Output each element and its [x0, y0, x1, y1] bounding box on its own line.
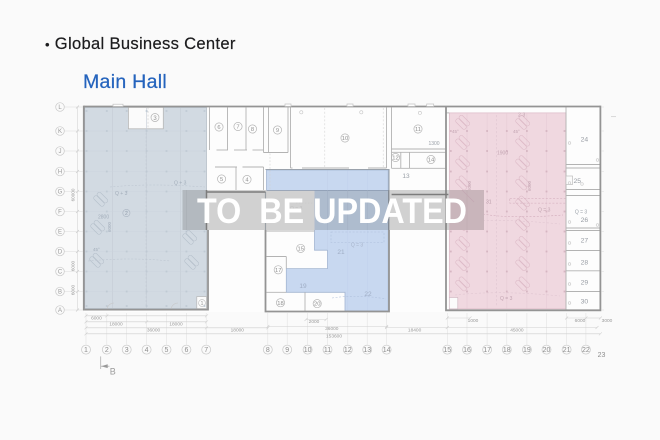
svg-text:6000: 6000: [527, 180, 532, 191]
svg-text:TO BE UPDATED: TO BE UPDATED: [197, 191, 467, 231]
svg-text:14: 14: [428, 158, 435, 164]
svg-text:60000: 60000: [71, 188, 76, 201]
svg-text:28: 28: [581, 260, 589, 267]
svg-text:10: 10: [304, 347, 312, 354]
svg-text:4: 4: [145, 347, 149, 354]
svg-text:16: 16: [463, 347, 471, 354]
svg-text:1900: 1900: [497, 151, 508, 157]
svg-text:10: 10: [342, 136, 348, 142]
svg-text:15: 15: [443, 347, 451, 354]
svg-text:Q = 3: Q = 3: [351, 243, 364, 249]
svg-text:45°: 45°: [513, 129, 520, 134]
svg-text:45°: 45°: [93, 247, 100, 252]
svg-text:23: 23: [598, 352, 606, 359]
svg-text:C: C: [58, 270, 63, 276]
svg-text:E: E: [58, 230, 62, 236]
svg-text:6000: 6000: [107, 221, 112, 232]
svg-text:22: 22: [364, 291, 372, 298]
svg-text:9: 9: [276, 128, 279, 134]
svg-text:18400: 18400: [408, 327, 422, 333]
svg-text:12: 12: [392, 156, 398, 162]
svg-text:12: 12: [344, 347, 352, 354]
svg-text:5: 5: [220, 177, 223, 183]
svg-text:18000: 18000: [169, 322, 183, 328]
svg-text:20: 20: [543, 347, 551, 354]
svg-text:1000: 1000: [468, 318, 479, 324]
svg-text:21: 21: [563, 347, 571, 354]
svg-text:21: 21: [337, 249, 345, 256]
svg-text:36000: 36000: [325, 326, 339, 332]
svg-text:14: 14: [383, 347, 391, 354]
svg-text:3000: 3000: [602, 318, 613, 324]
svg-text:Q = 3: Q = 3: [500, 296, 513, 302]
svg-text:6000: 6000: [91, 316, 102, 322]
svg-text:1: 1: [201, 301, 204, 307]
svg-text:153600: 153600: [326, 333, 342, 339]
svg-text:H: H: [58, 170, 62, 176]
svg-text:11: 11: [415, 127, 421, 133]
svg-text:20: 20: [314, 302, 320, 308]
svg-text:8: 8: [266, 347, 270, 354]
svg-text:36000: 36000: [147, 328, 161, 334]
svg-text:8: 8: [251, 127, 254, 133]
svg-text:6000: 6000: [71, 284, 76, 295]
svg-text:19: 19: [523, 347, 531, 354]
svg-text:F: F: [58, 210, 62, 216]
svg-text:5: 5: [165, 347, 169, 354]
svg-text:6: 6: [184, 347, 188, 354]
svg-text:9: 9: [285, 347, 289, 354]
svg-text:J: J: [59, 149, 62, 155]
svg-text:29: 29: [581, 280, 589, 287]
svg-text:B: B: [110, 367, 116, 377]
svg-text:18: 18: [503, 347, 511, 354]
svg-text:2: 2: [125, 211, 128, 217]
svg-text:Q = 3: Q = 3: [575, 210, 588, 216]
svg-text:6000: 6000: [71, 260, 76, 271]
svg-text:D: D: [58, 250, 63, 256]
svg-text:18: 18: [277, 301, 283, 307]
svg-text:6: 6: [217, 125, 220, 131]
svg-text:22: 22: [582, 347, 590, 354]
svg-text:A: A: [58, 308, 62, 314]
svg-text:2800: 2800: [98, 215, 109, 221]
svg-text:Q + 3: Q + 3: [115, 191, 128, 197]
svg-text:G: G: [58, 190, 63, 196]
svg-text:17: 17: [275, 268, 281, 274]
svg-text:31: 31: [486, 200, 492, 206]
svg-text:25: 25: [574, 178, 582, 185]
svg-text:11: 11: [324, 347, 331, 354]
svg-text:1300: 1300: [428, 141, 439, 147]
svg-text:24: 24: [581, 137, 589, 144]
svg-text:Q + 3: Q + 3: [174, 181, 187, 187]
svg-text:2000: 2000: [309, 319, 320, 325]
svg-text:7: 7: [236, 125, 239, 131]
svg-text:17: 17: [483, 347, 491, 354]
svg-text:6000: 6000: [575, 318, 586, 324]
svg-text:30: 30: [581, 298, 589, 305]
svg-text:2-3: 2-3: [518, 113, 525, 119]
svg-text:19: 19: [299, 283, 307, 290]
svg-text:K: K: [58, 129, 62, 135]
svg-text:B: B: [58, 290, 62, 296]
svg-text:13: 13: [363, 347, 371, 354]
svg-text:1: 1: [84, 347, 88, 354]
svg-text:L: L: [58, 105, 62, 111]
svg-text:18000: 18000: [109, 322, 123, 328]
svg-text:3: 3: [125, 347, 129, 354]
svg-text:15: 15: [297, 247, 303, 253]
svg-text:Q = 3: Q = 3: [538, 208, 551, 214]
svg-text:26: 26: [581, 217, 589, 224]
svg-text:45°: 45°: [452, 129, 459, 134]
svg-text:6000: 6000: [467, 180, 472, 191]
svg-text:13: 13: [402, 173, 410, 180]
svg-text:2: 2: [105, 347, 109, 354]
svg-text:45000: 45000: [510, 327, 524, 333]
svg-text:18000: 18000: [231, 328, 245, 334]
svg-text:7: 7: [204, 347, 208, 354]
svg-text:27: 27: [581, 238, 589, 245]
